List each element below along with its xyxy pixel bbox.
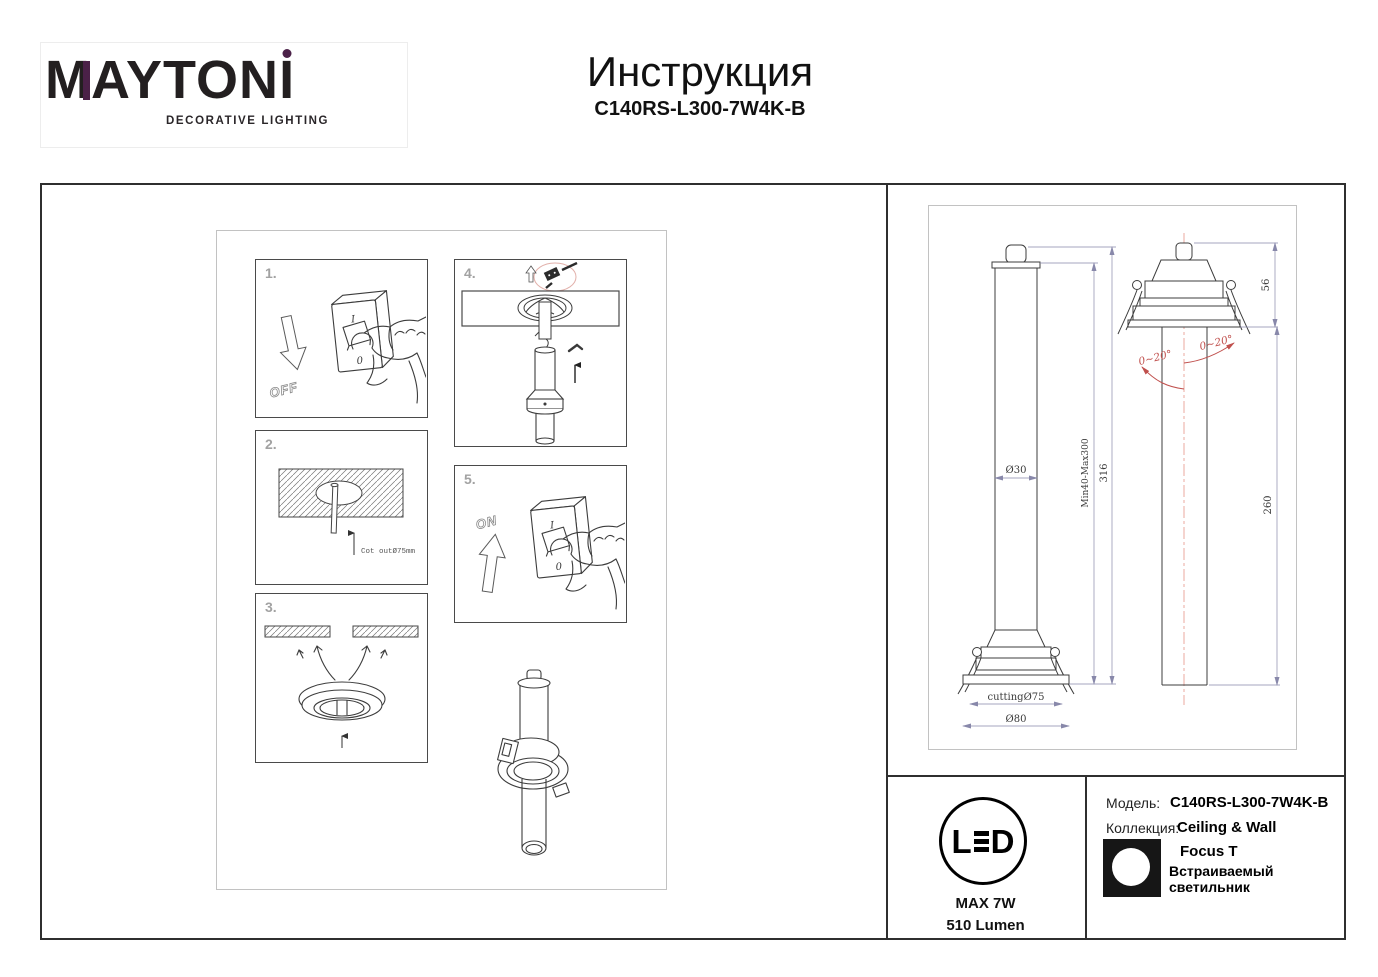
product-type: Встраиваемый светильник — [1169, 863, 1346, 895]
mounting-ring — [299, 682, 385, 720]
tilt-left-label: 0~20° — [1137, 348, 1173, 368]
step-4-illustration — [456, 262, 625, 446]
led-letter-l: L — [951, 825, 971, 858]
tube-diameter-dim: Ø30 — [1006, 465, 1027, 476]
page-title: Инструкция — [480, 48, 920, 96]
document-title-block: Инструкция C140RS-L300-7W4K-B — [480, 48, 920, 121]
model-value: C140RS-L300-7W4K-B — [1170, 794, 1328, 811]
brand-letters-mid: AYTON — [91, 50, 279, 110]
front-view-drawing: Ø30 cuttingØ75 Ø80 Min40-Max300 316 — [958, 245, 1116, 726]
instruction-sheet: MAYTONI DECORATIVE LIGHTING Инструкция C… — [0, 0, 1378, 977]
led-badge-icon: L D — [939, 797, 1027, 885]
assembled-fixture-illustration — [488, 652, 656, 867]
light-cylinder — [527, 347, 563, 444]
series-name: Focus T — [1180, 843, 1238, 860]
product-thumbnail — [1103, 839, 1161, 897]
step-5-box: 5. ON — [454, 465, 627, 623]
step-4-box: 4. — [454, 259, 627, 447]
led-letter-e-bars — [974, 831, 989, 852]
step-3-box: 3. — [255, 593, 428, 763]
lumen-label: 510 Lumen — [886, 917, 1085, 934]
cutting-hole-dim: cuttingØ75 — [987, 692, 1044, 703]
page-model-code: C140RS-L300-7W4K-B — [480, 98, 920, 121]
maytoni-logo: MAYTONI DECORATIVE LIGHTING — [40, 42, 408, 148]
led-badge-cell: L D MAX 7W 510 Lumen — [886, 775, 1087, 940]
total-height-dim: 316 — [1099, 463, 1110, 482]
logo-dot-icon — [283, 49, 292, 58]
allen-key-icon — [569, 345, 582, 351]
step-1-box: 1. I 0 — [255, 259, 428, 418]
collection-value: Ceiling & Wall — [1177, 819, 1276, 836]
step-5-illustration: ON — [456, 470, 625, 622]
terminal-block — [544, 263, 577, 288]
step-2-illustration: Cot outØ75mm — [257, 433, 426, 582]
tilt-right-label: 0~20° — [1198, 333, 1234, 353]
recess-depth-dim: 56 — [1261, 279, 1272, 292]
ceiling-ring — [518, 295, 572, 339]
outer-diameter-dim: Ø80 — [1006, 714, 1027, 725]
step-1-illustration: I 0 OFF — [257, 264, 426, 417]
downlight-face-icon — [1112, 848, 1150, 886]
tube-length-dim: 260 — [1263, 495, 1274, 514]
adjust-range-dim: Min40-Max300 — [1081, 438, 1091, 507]
brand-letter-i: I — [279, 51, 295, 109]
spring-clips — [297, 646, 387, 680]
cutout-note: Cot outØ75mm — [361, 547, 416, 556]
led-letter-d: D — [991, 825, 1015, 858]
step-3-illustration — [257, 596, 426, 760]
model-label: Модель: — [1106, 795, 1160, 811]
product-info-cell: Модель: C140RS-L300-7W4K-B Коллекция: Ce… — [1085, 775, 1346, 940]
brand-tagline: DECORATIVE LIGHTING — [166, 115, 329, 127]
step-2-box: 2. Cot outØ75mm — [255, 430, 428, 585]
off-label: OFF — [268, 379, 300, 401]
collection-label: Коллекция: — [1106, 820, 1179, 836]
brand-letter-m: M — [45, 51, 91, 109]
brand-wordmark: MAYTONI — [45, 51, 295, 109]
tilt-view-drawing: 0~20° 0~20° 56 260 — [1118, 233, 1280, 705]
technical-drawings: Ø30 cuttingØ75 Ø80 Min40-Max300 316 — [928, 205, 1297, 750]
max-power-label: MAX 7W — [886, 895, 1085, 912]
on-label: ON — [474, 512, 498, 532]
